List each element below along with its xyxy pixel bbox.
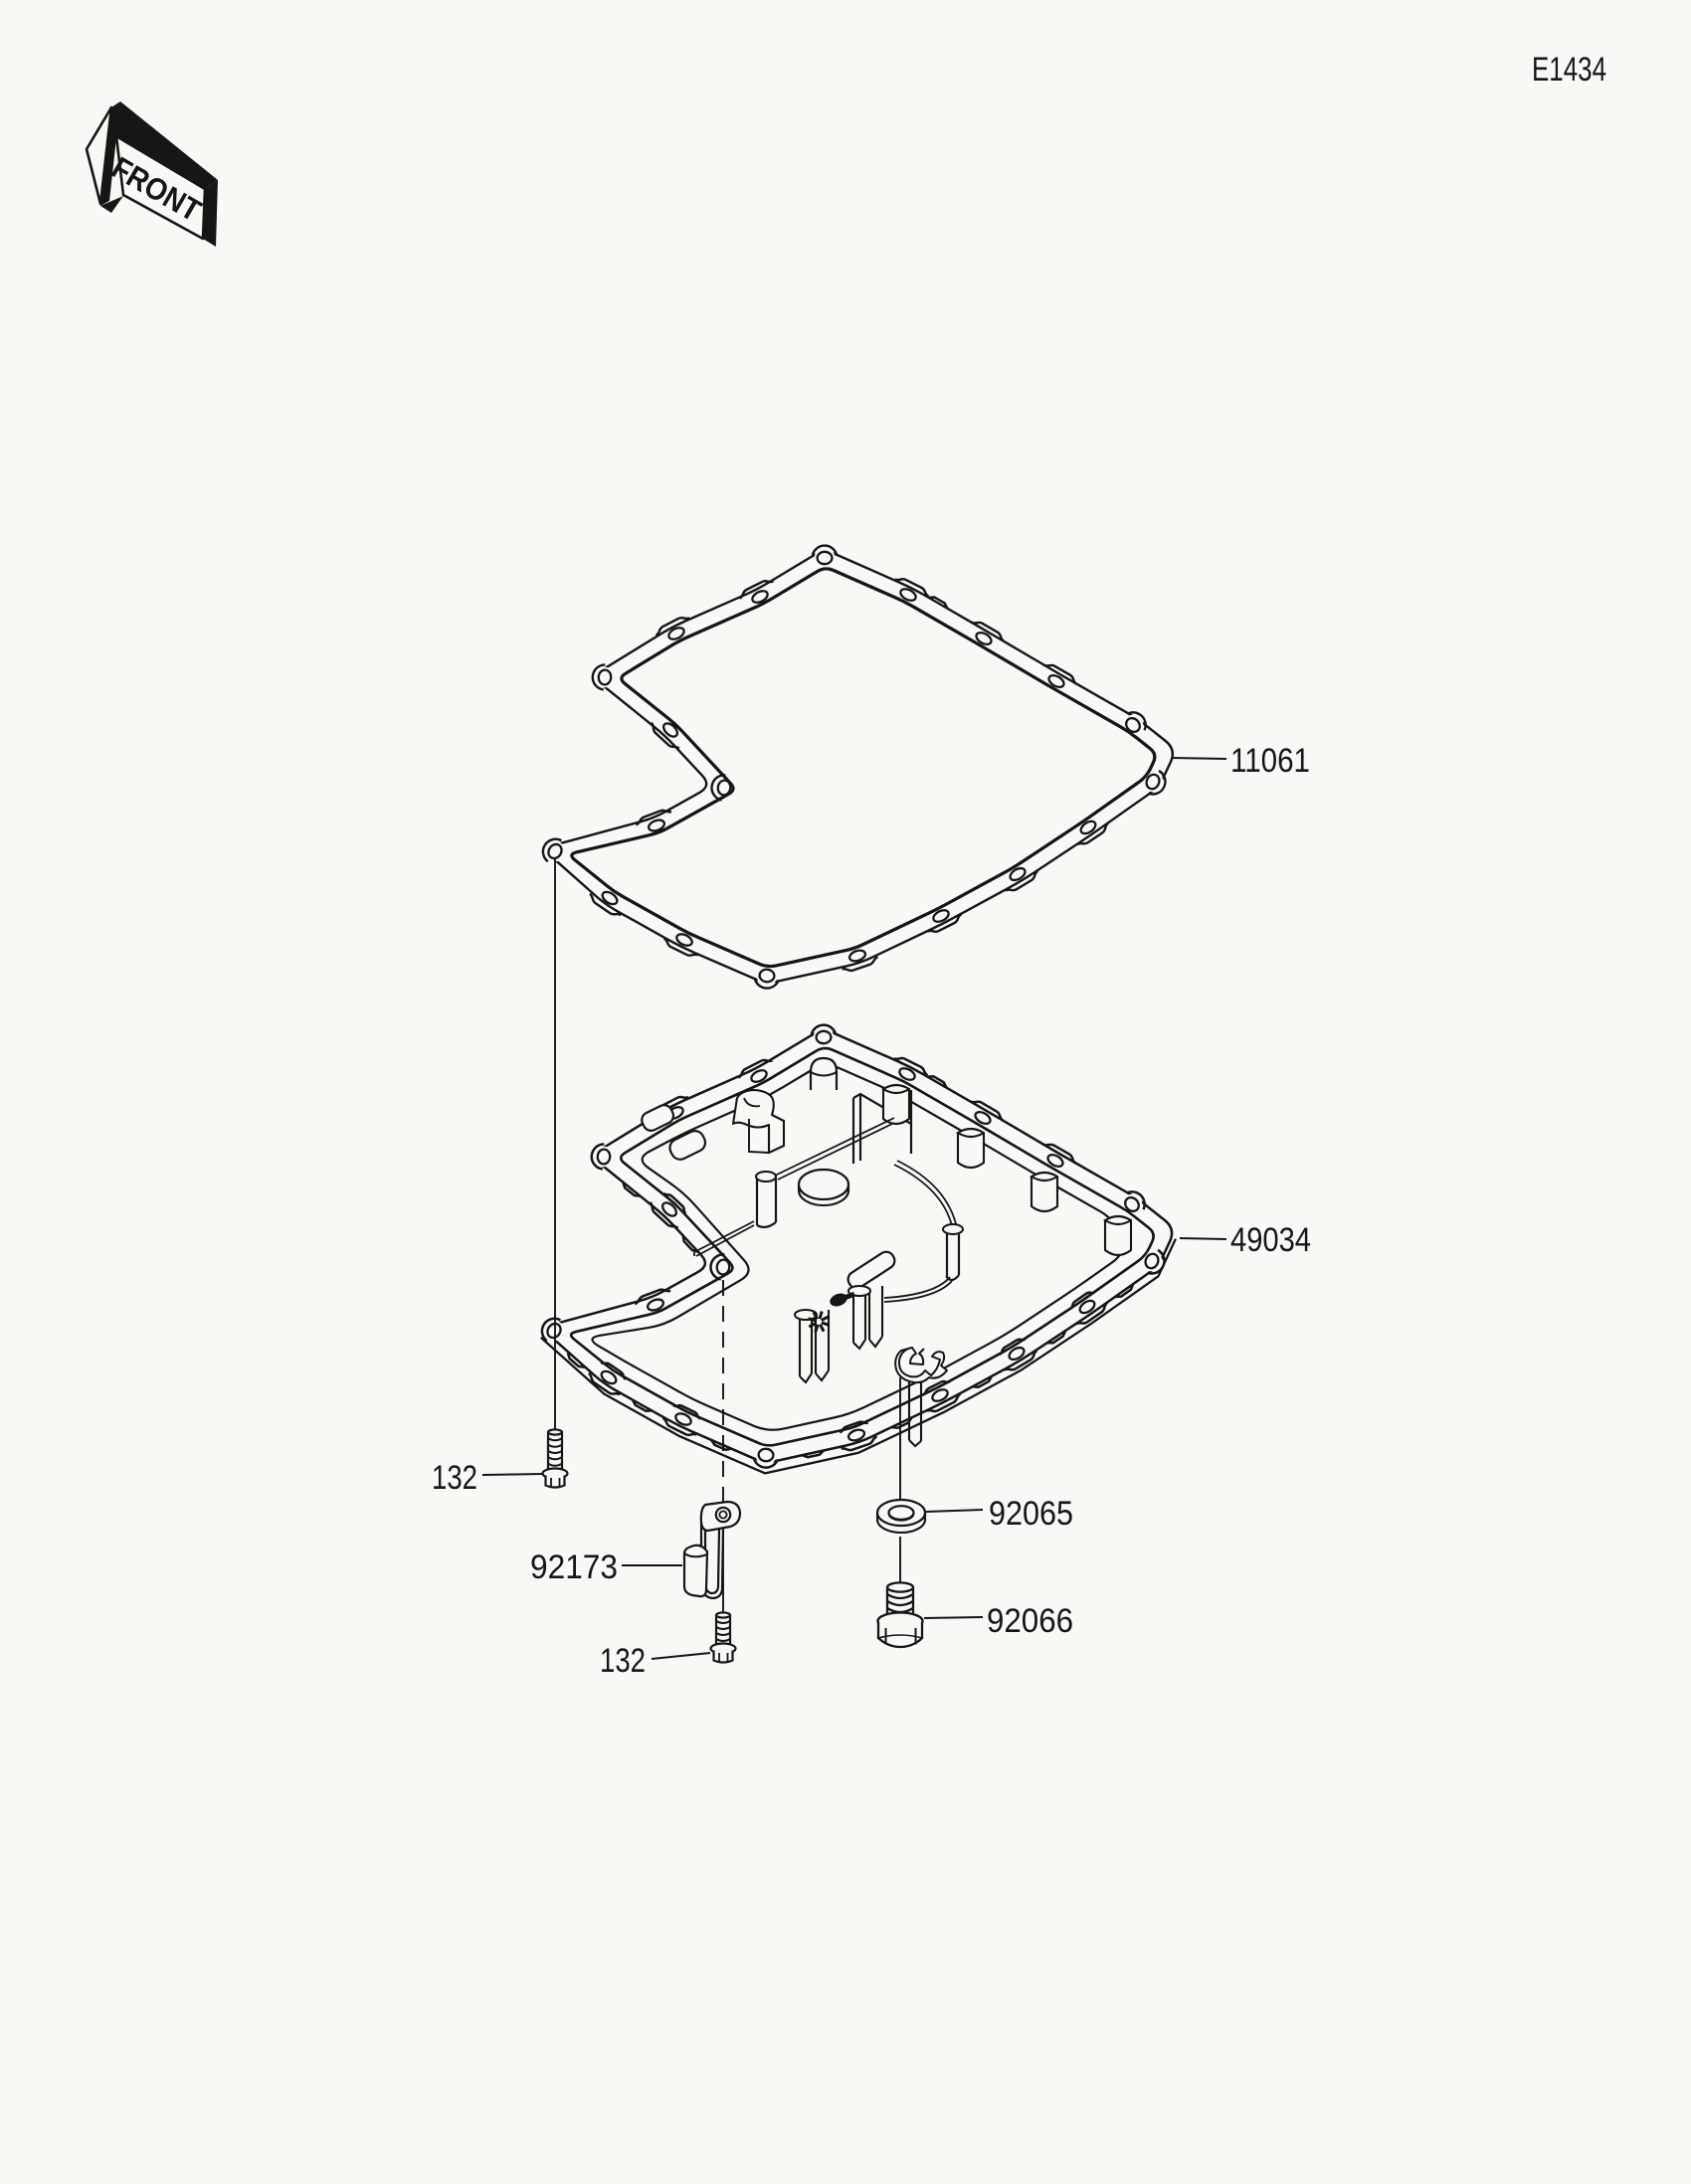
svg-text:49034: 49034	[1230, 1221, 1311, 1259]
svg-text:E1434: E1434	[1532, 51, 1606, 89]
svg-text:92173: 92173	[530, 1548, 618, 1586]
svg-text:132: 132	[600, 1642, 646, 1680]
svg-text:11061: 11061	[1230, 742, 1310, 780]
svg-text:92066: 92066	[987, 1602, 1073, 1640]
svg-text:132: 132	[432, 1459, 477, 1497]
svg-text:92065: 92065	[989, 1495, 1073, 1533]
